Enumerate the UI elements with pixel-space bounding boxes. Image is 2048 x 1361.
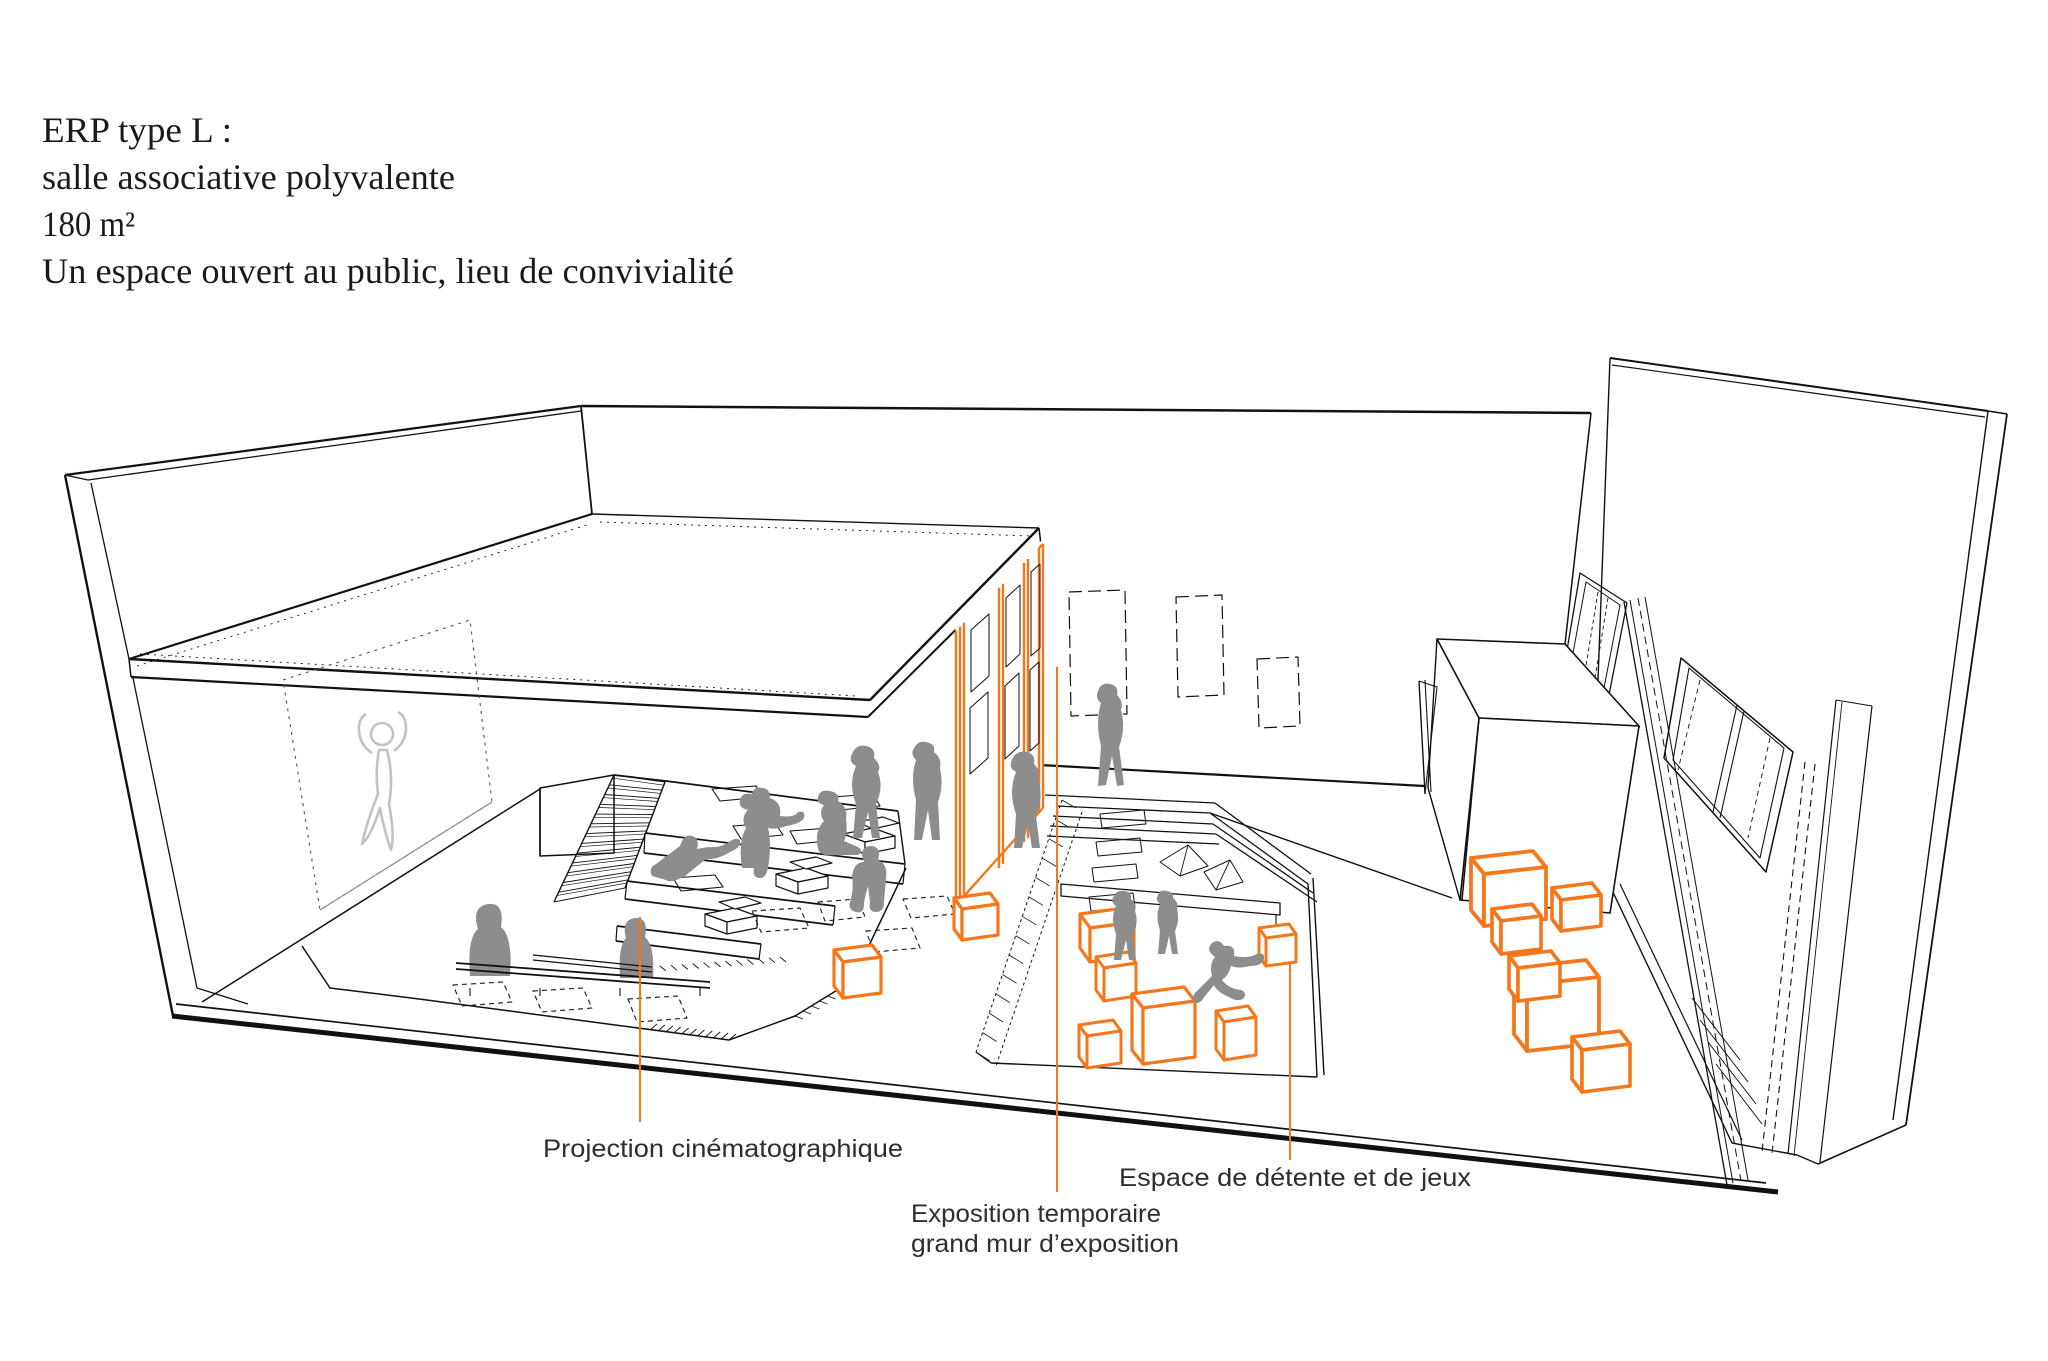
svg-text:Exposition temporaire: Exposition temporaire: [911, 1200, 1161, 1228]
svg-text:salle associative polyvalente: salle associative polyvalente: [42, 157, 455, 197]
svg-text:180 m²: 180 m²: [42, 204, 135, 244]
svg-text:Espace de détente et de jeux: Espace de détente et de jeux: [1119, 1164, 1472, 1192]
svg-text:Un espace ouvert au public, li: Un espace ouvert au public, lieu de conv…: [42, 251, 734, 291]
svg-text:grand mur d’exposition: grand mur d’exposition: [911, 1230, 1179, 1258]
svg-text:ERP type L :: ERP type L :: [42, 110, 232, 150]
svg-text:Projection cinématographique: Projection cinématographique: [543, 1135, 903, 1163]
